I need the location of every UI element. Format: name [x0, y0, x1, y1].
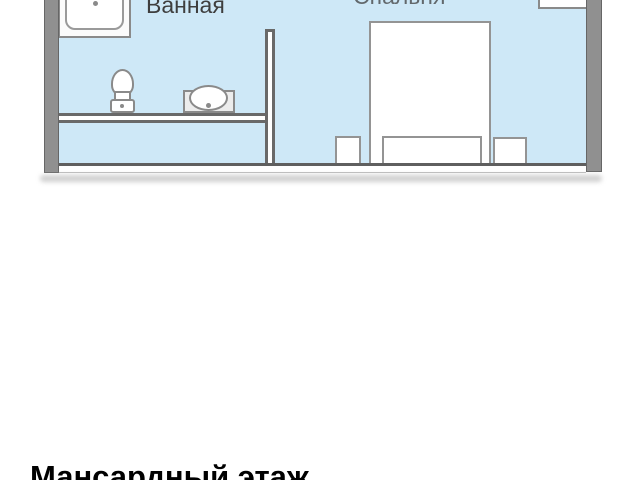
- toilet-dot: [120, 104, 124, 108]
- sink-faucet-dot: [93, 1, 98, 6]
- bed-footboard: [382, 136, 482, 166]
- window-niche: [538, 0, 588, 9]
- interior-wall-horizontal: [58, 113, 267, 123]
- right-wall: [586, 0, 602, 172]
- plan-shadow: [40, 175, 602, 182]
- partition-wall: [265, 29, 275, 166]
- left-wall: [44, 0, 59, 173]
- bathroom-label: Ванная: [146, 0, 225, 17]
- washbasin-drain-dot: [206, 103, 211, 108]
- bottom-wall-band: [59, 166, 586, 173]
- floor-title: Мансардный этаж: [30, 461, 309, 480]
- nightstand-right: [493, 137, 527, 166]
- bedroom-label-text: Спальня: [353, 0, 468, 4]
- floor-plan: Ванная Спальня Мансардный этаж: [0, 0, 640, 480]
- bedroom-label-clipped: Спальня: [353, 0, 468, 4]
- nightstand-left: [335, 136, 361, 166]
